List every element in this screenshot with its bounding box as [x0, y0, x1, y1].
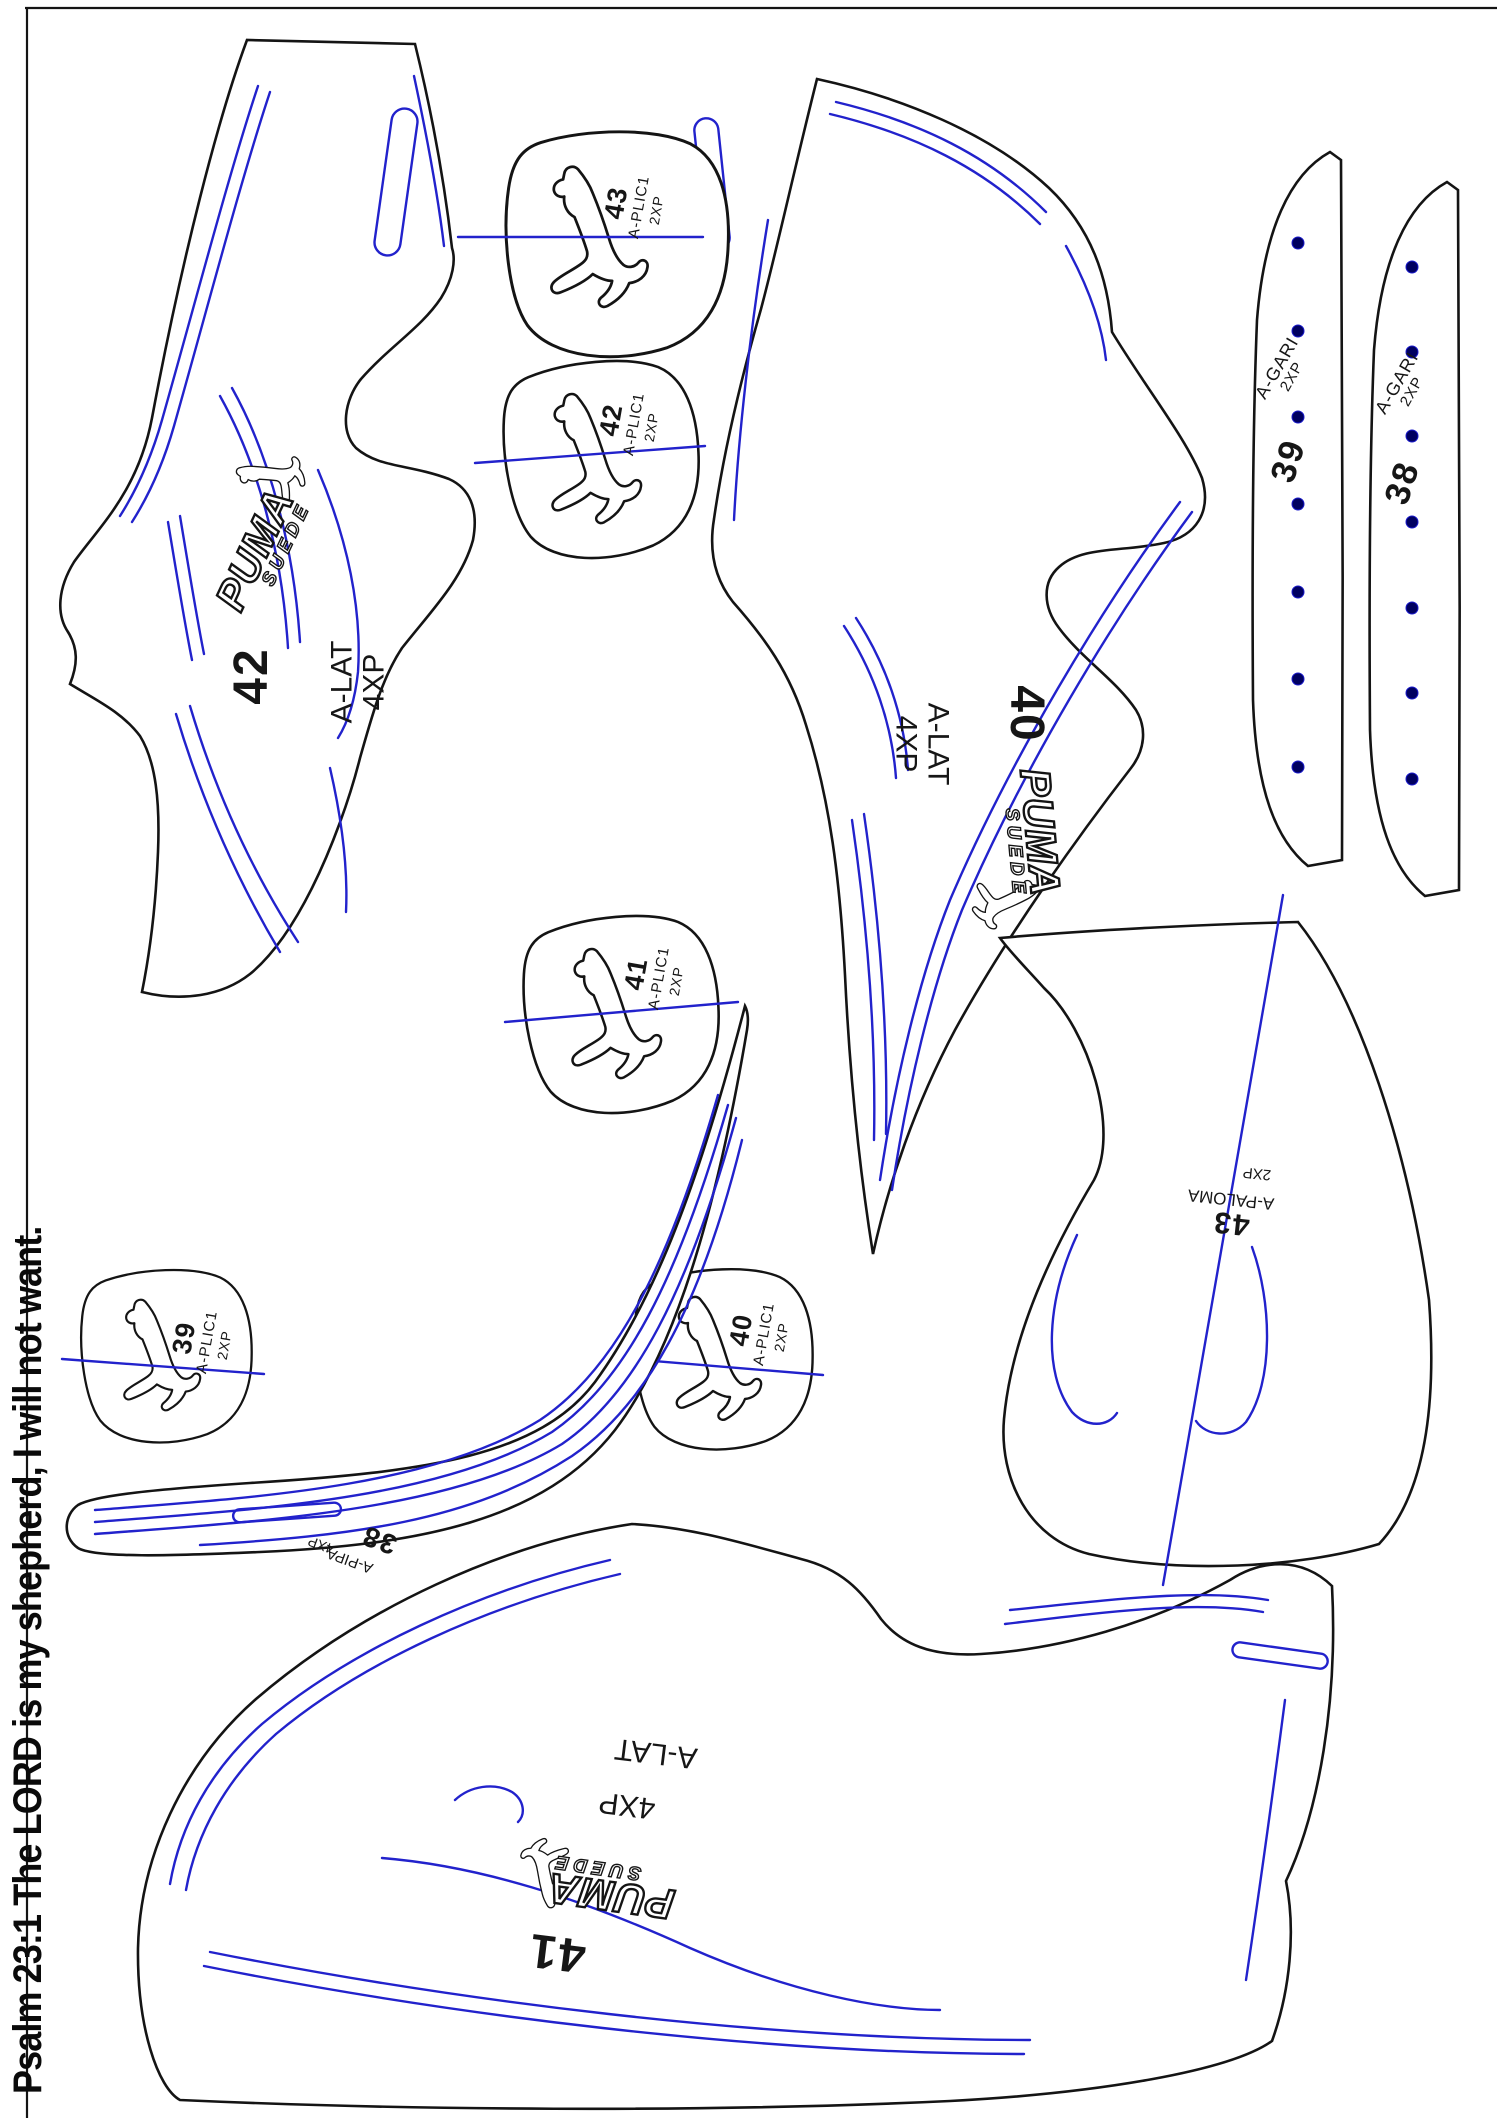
piece-label-plic41: 41 A-PLIC1 2XP	[617, 940, 690, 1014]
piece-qty-lat41: 4XP	[597, 1786, 657, 1824]
piece-label-plic42: 42 A-PLIC1 2XP	[592, 386, 665, 460]
piece-lat41	[138, 1524, 1333, 2109]
piece-number-lat41: 41	[525, 1923, 588, 1980]
piece-label-lat40: A-LAT 4XP	[891, 703, 954, 786]
piece-number-paloma43: 43	[1211, 1205, 1251, 1240]
piece-plic42	[475, 349, 712, 569]
piece-label-plic40: 40 A-PLIC1 2XP	[722, 1296, 795, 1370]
pattern-sheet: 42 A-LAT 4XP PUMA SUEDE 40 A-LAT 4XP PUM…	[0, 0, 1500, 2121]
pattern-drawing	[0, 0, 1500, 2121]
piece-number-lat42: 42	[227, 647, 277, 704]
piece-label-plic43: 43 A-PLIC1 2XP	[597, 169, 670, 243]
piece-number-lat40: 40	[1001, 685, 1051, 742]
piece-plic41	[505, 904, 738, 1124]
psalm-footer-text: Psalm 23:1 The LORD is my shepherd, I wi…	[6, 1227, 51, 2094]
puma-logo-lat40: PUMA SUEDE	[999, 767, 1066, 899]
piece-gari39	[1253, 152, 1343, 866]
piece-plic39	[62, 1263, 264, 1449]
piece-gari38	[1370, 182, 1460, 896]
piece-label-plic39: 39 A-PLIC1 2XP	[165, 1304, 238, 1378]
piece-plic43	[458, 126, 735, 362]
piece-label-lat42: A-LAT 4XP	[327, 641, 390, 724]
piece-paloma43	[1000, 895, 1431, 1585]
piece-qty-paloma43: 2XP	[1242, 1164, 1272, 1183]
